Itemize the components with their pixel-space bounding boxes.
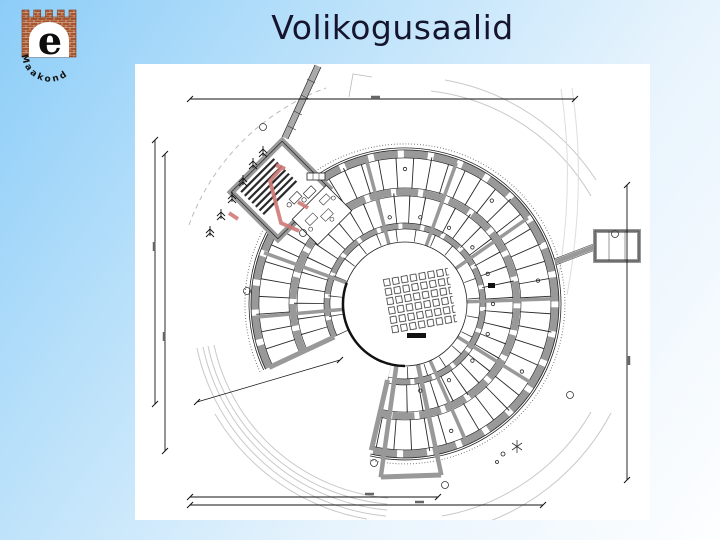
logo-letter: e: [38, 18, 62, 63]
hall-label-stamp: [407, 333, 426, 338]
entrance-ramp: [282, 65, 321, 139]
floorplan-image: [135, 64, 650, 520]
county-logo-graphic: e Maakond: [14, 5, 92, 89]
hall-chair-rows: [383, 268, 458, 335]
east-annex: [554, 231, 639, 265]
county-logo: e Maakond: [14, 5, 92, 89]
slide-background: e Maakond Volikogusaalid: [0, 0, 720, 540]
page-title: Volikogusaalid: [135, 8, 650, 47]
floorplan-svg: [135, 64, 650, 520]
